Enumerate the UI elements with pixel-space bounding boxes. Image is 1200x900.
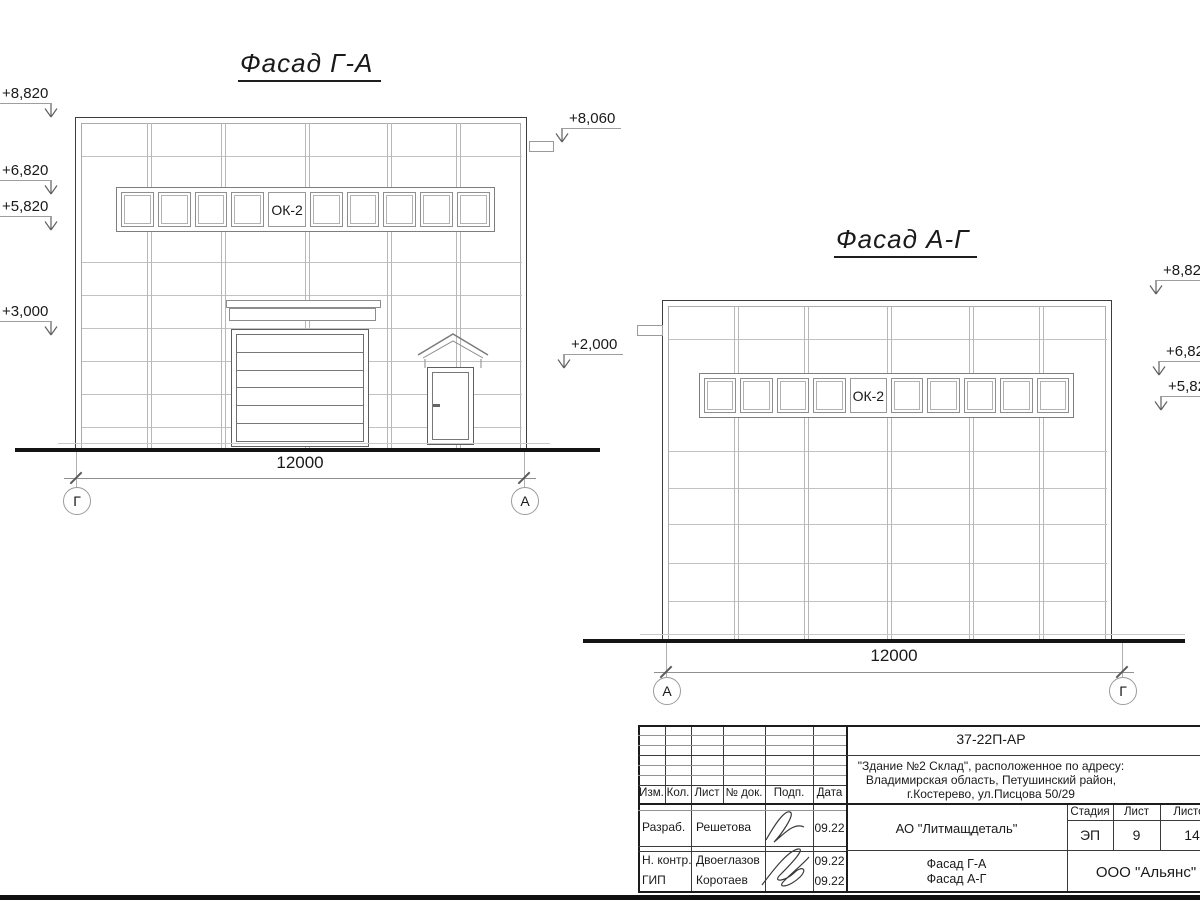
window-pane	[891, 378, 923, 413]
titleblock-line	[691, 725, 692, 893]
tb-name: Решетова	[696, 820, 751, 834]
tb-designation: 37-22П-АР	[856, 731, 1126, 747]
titleblock-line	[638, 745, 846, 746]
elevation-mark: +6,820	[0, 163, 52, 179]
elevation-arrow-icon	[1149, 280, 1163, 298]
tb-org: ООО "Альянс"	[1067, 864, 1200, 881]
window-band: ОК-2	[116, 187, 495, 232]
elevation-arrow-icon	[44, 103, 58, 121]
titleblock-line	[638, 803, 1200, 805]
dimension-value: 12000	[844, 646, 944, 666]
column-line	[1039, 306, 1044, 639]
window-pane	[420, 192, 453, 227]
elevation-mark: +8,820	[1155, 263, 1200, 279]
elevation-mark: +8,060	[561, 111, 621, 127]
roof-outlet	[529, 141, 554, 152]
elevation-value: +8,820	[1155, 263, 1200, 279]
elevation-value: +3,000	[0, 304, 52, 320]
elevation-mark: +8,820	[0, 86, 52, 102]
window-pane	[310, 192, 343, 227]
tb-sheet-header: Лист	[1113, 806, 1160, 818]
foundation-line	[58, 443, 550, 444]
titleblock-line	[638, 735, 846, 736]
elevation-value: +6,820	[1158, 344, 1200, 360]
tb-stage-header: Стадия	[1067, 806, 1113, 818]
titleblock-line	[638, 891, 1200, 893]
titleblock-line	[638, 846, 846, 847]
elevation-mark: +5,820	[0, 199, 52, 215]
elevation-arrow-icon	[44, 216, 58, 234]
titleblock-line	[638, 765, 846, 766]
window-pane	[927, 378, 959, 413]
elevation-value: +6,820	[0, 163, 52, 179]
elevation-value: +8,820	[0, 86, 52, 102]
elevation-arrow-icon	[557, 354, 571, 372]
signature	[760, 806, 810, 848]
window-pane	[457, 192, 490, 227]
gate-slats	[236, 334, 364, 442]
elevation-underline	[561, 128, 621, 129]
signature	[758, 845, 812, 891]
window-pane	[121, 192, 154, 227]
titleblock-line	[638, 725, 1200, 727]
axis-extension-line	[524, 452, 525, 488]
sectional-gate	[231, 329, 369, 447]
tb-role: ГИП	[642, 873, 666, 887]
facade-ga-title: Фасад Г-А	[238, 48, 381, 82]
window-pane	[1037, 378, 1069, 413]
titleblock-line	[638, 775, 846, 776]
tb-role: Разраб.	[642, 820, 685, 834]
window-pane: ОК-2	[850, 378, 888, 413]
titleblock-line	[638, 851, 846, 852]
tb-date: 09.22	[813, 874, 846, 888]
window-pane	[740, 378, 772, 413]
roof-outlet	[637, 325, 663, 336]
tb-address-line3: г.Костерево, ул.Писцова 50/29	[849, 787, 1133, 801]
axis-bubble: Г	[63, 487, 91, 515]
elevation-value: +5,820	[1160, 379, 1200, 395]
tb-company: АО "Литмащдеталь"	[846, 821, 1067, 836]
elevation-value: +2,000	[563, 337, 623, 353]
column-line	[969, 306, 974, 639]
tb-role: Н. контр.	[642, 853, 692, 867]
titleblock-line	[638, 755, 1200, 756]
window-label: ОК-2	[851, 388, 887, 404]
elevation-value: +8,060	[561, 111, 621, 127]
window-pane	[1000, 378, 1032, 413]
tb-sheet-value: 9	[1113, 827, 1160, 843]
elevation-arrow-icon	[1152, 361, 1166, 379]
titleblock-line	[638, 725, 640, 893]
tb-sheet-title-line1: Фасад Г-А	[846, 857, 1067, 872]
axis-bubble: А	[511, 487, 539, 515]
tb-name: Двоеглазов	[696, 853, 760, 867]
window-pane	[195, 192, 228, 227]
tb-stage-value: ЭП	[1067, 827, 1113, 843]
column-line	[804, 306, 809, 639]
tb-header-data: Дата	[813, 787, 846, 799]
tb-header-kol: Кол.	[665, 787, 691, 799]
titleblock-line	[638, 785, 846, 786]
dimension-line	[654, 672, 1134, 673]
tb-address-line1: "Здание №2 Склад", расположенное по адре…	[849, 759, 1133, 773]
column-line	[221, 123, 226, 448]
tb-header-list: Лист	[691, 787, 723, 799]
tb-header-doc: № док.	[723, 787, 765, 799]
door-gable-canopy	[416, 330, 490, 368]
entry-door	[427, 367, 474, 445]
facade-ag-drawing: ОК-2	[662, 300, 1112, 640]
elevation-mark: +5,820	[1160, 379, 1200, 395]
titleblock-line	[1067, 820, 1200, 821]
window-band: ОК-2	[699, 373, 1074, 418]
dimension-line	[64, 478, 536, 479]
window-pane	[813, 378, 845, 413]
elevation-arrow-icon	[555, 128, 569, 146]
window-pane: ОК-2	[268, 192, 306, 227]
axis-bubble: А	[653, 677, 681, 705]
window-pane	[158, 192, 191, 227]
column-line	[734, 306, 739, 639]
elevation-mark: +6,820	[1158, 344, 1200, 360]
titleblock-line	[638, 810, 846, 811]
window-pane	[777, 378, 809, 413]
window-pane	[964, 378, 996, 413]
tb-sheets-value: 14	[1160, 827, 1200, 843]
window-pane	[383, 192, 416, 227]
elevation-mark: +2,000	[563, 337, 623, 353]
titleblock-line	[846, 850, 1200, 851]
window-pane	[231, 192, 264, 227]
ground-line	[15, 448, 600, 452]
tb-sheets-header: Листов	[1160, 806, 1200, 818]
facade-ag-title: Фасад А-Г	[834, 224, 977, 258]
window-pane	[347, 192, 380, 227]
ground-line	[583, 639, 1185, 643]
sheet-bottom-edge	[0, 895, 1200, 900]
tb-name: Коротаев	[696, 873, 748, 887]
facade-ga-drawing: ОК-2	[75, 117, 527, 449]
elevation-arrow-icon	[44, 180, 58, 198]
dimension-value: 12000	[250, 453, 350, 473]
window-pane	[704, 378, 736, 413]
column-line	[147, 123, 152, 448]
column-line	[887, 306, 892, 639]
gate-canopy	[226, 300, 381, 308]
elevation-mark: +3,000	[0, 304, 52, 320]
tb-sheet-title-line2: Фасад А-Г	[846, 872, 1067, 887]
tb-date: 09.22	[813, 854, 846, 868]
window-label: ОК-2	[269, 202, 305, 218]
foundation-line	[640, 634, 1185, 635]
elevation-value: +5,820	[0, 199, 52, 215]
tb-date: 09.22	[813, 821, 846, 835]
door-handle-icon	[433, 404, 440, 407]
axis-extension-line	[76, 452, 77, 488]
tb-header-izm: Изм.	[638, 787, 665, 799]
tb-header-podp: Подп.	[765, 787, 813, 799]
elevation-arrow-icon	[44, 321, 58, 339]
gate-canopy	[229, 308, 376, 321]
tb-address-line2: Владимирская область, Петушинский район,	[849, 773, 1133, 787]
axis-bubble: Г	[1109, 677, 1137, 705]
elevation-underline	[563, 354, 623, 355]
drawing-sheet: Фасад Г-А +8,820 +6,820 +5,820 +3,000 +8…	[0, 0, 1200, 900]
column-line	[387, 123, 392, 448]
elevation-arrow-icon	[1154, 396, 1168, 414]
